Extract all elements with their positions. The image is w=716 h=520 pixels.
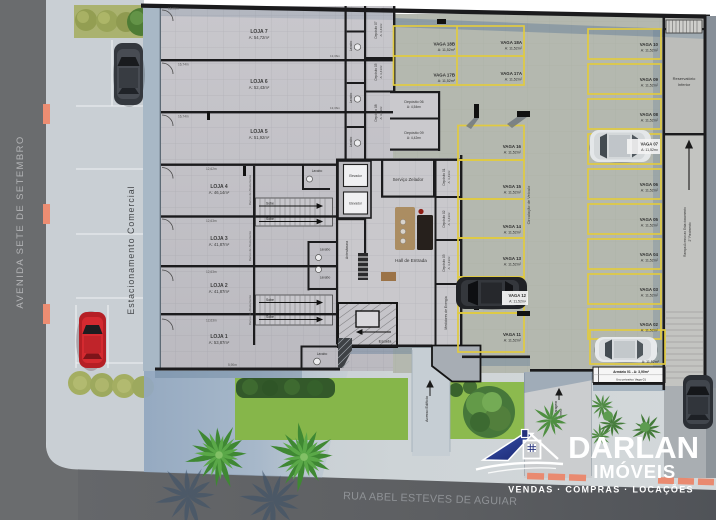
svg-text:Recuo de Afastamento: Recuo de Afastamento <box>248 174 252 205</box>
svg-text:A: 11,52m²: A: 11,52m² <box>641 148 659 152</box>
svg-text:Depósito 08: Depósito 08 <box>374 104 378 121</box>
svg-text:A: 3,43m²: A: 3,43m² <box>447 170 451 183</box>
svg-text:Uso privativo Vaga 01: Uso privativo Vaga 01 <box>616 377 646 381</box>
svg-text:DARLAN: DARLAN <box>568 430 699 465</box>
svg-text:VAGA 16: VAGA 16 <box>503 144 522 149</box>
svg-text:Depósito 02: Depósito 02 <box>442 210 446 227</box>
svg-text:12,63m: 12,63m <box>206 219 217 223</box>
svg-text:VAGA 06: VAGA 06 <box>640 182 659 187</box>
svg-text:A: 41,87m²: A: 41,87m² <box>209 289 230 294</box>
svg-text:AVENIDA SETE DE SETEMBRO: AVENIDA SETE DE SETEMBRO <box>15 135 26 308</box>
svg-text:VAGA 17A: VAGA 17A <box>501 71 523 76</box>
svg-text:VAGA 10: VAGA 10 <box>640 42 659 47</box>
svg-text:Depósito 06: Depósito 06 <box>404 100 423 104</box>
svg-text:Depósito 03: Depósito 03 <box>442 254 446 271</box>
svg-text:A: 11,52m²: A: 11,52m² <box>641 329 659 333</box>
svg-text:A: 11,52m²: A: 11,52m² <box>504 191 522 195</box>
svg-text:Circulação de Veículo: Circulação de Veículo <box>526 185 531 224</box>
svg-text:VAGA 09: VAGA 09 <box>640 77 659 82</box>
svg-text:Lavabo: Lavabo <box>312 169 323 173</box>
svg-text:A: 54,72m²: A: 54,72m² <box>249 35 270 40</box>
svg-text:Reservatório: Reservatório <box>673 76 696 81</box>
svg-text:VAGA 04: VAGA 04 <box>640 252 659 257</box>
svg-text:VAGA 03: VAGA 03 <box>640 287 659 292</box>
svg-text:A: 53,87m²: A: 53,87m² <box>209 340 230 345</box>
svg-text:Rampa Acesso ao Estacionamento: Rampa Acesso ao Estacionamento <box>683 207 687 257</box>
svg-text:VAGA 12: VAGA 12 <box>509 293 527 298</box>
svg-text:13,36m: 13,36m <box>330 54 341 58</box>
svg-text:2° Pavimento: 2° Pavimento <box>688 222 692 241</box>
svg-text:VAGA 18B: VAGA 18B <box>434 42 455 47</box>
svg-text:Depósito 07: Depósito 07 <box>374 21 378 38</box>
svg-text:IMÓVEIS: IMÓVEIS <box>593 461 676 482</box>
svg-text:12,63m: 12,63m <box>206 270 217 274</box>
svg-text:A: 46,14m²: A: 46,14m² <box>209 190 230 195</box>
svg-text:Serviço Zelador: Serviço Zelador <box>393 177 424 182</box>
svg-text:Depósito 01: Depósito 01 <box>442 168 446 185</box>
svg-text:Lavabo: Lavabo <box>320 248 331 252</box>
svg-text:5,90m: 5,90m <box>228 363 237 367</box>
svg-text:Acesso Edifício: Acesso Edifício <box>425 396 429 422</box>
svg-text:VAGA 11: VAGA 11 <box>503 332 522 337</box>
svg-text:A: 11,52m²: A: 11,52m² <box>641 49 659 53</box>
svg-text:Depósito 05: Depósito 05 <box>374 63 378 80</box>
svg-text:A: 51,92m²: A: 51,92m² <box>249 135 270 140</box>
svg-text:VAGA 17B: VAGA 17B <box>434 73 455 78</box>
svg-text:A: 11,52m²: A: 11,52m² <box>504 339 522 343</box>
svg-text:Recuo de Afastamento: Recuo de Afastamento <box>248 294 252 325</box>
svg-text:A: 4,42m²: A: 4,42m² <box>407 136 422 140</box>
svg-text:Sobe: Sobe <box>266 315 274 319</box>
svg-text:VAGA 08: VAGA 08 <box>640 112 659 117</box>
svg-text:Lavabo: Lavabo <box>349 41 353 52</box>
svg-text:A: 41,87m²: A: 41,87m² <box>209 242 230 247</box>
svg-text:A: 11,52m²: A: 11,52m² <box>438 48 456 52</box>
svg-text:13,36m: 13,36m <box>330 106 341 110</box>
svg-text:Hall de Entrada: Hall de Entrada <box>395 258 427 263</box>
svg-text:Depósito 09: Depósito 09 <box>404 131 423 135</box>
svg-text:Lavabo: Lavabo <box>349 137 353 148</box>
svg-text:Lavabo: Lavabo <box>349 93 353 104</box>
svg-text:A: 11,52m²: A: 11,52m² <box>505 78 523 82</box>
svg-text:A: 4,54m²: A: 4,54m² <box>407 105 422 109</box>
svg-text:VENDAS · COMPRAS · LOCAÇÕES: VENDAS · COMPRAS · LOCAÇÕES <box>508 485 694 495</box>
svg-text:Lavabo: Lavabo <box>317 352 328 356</box>
svg-text:VAGA 07: VAGA 07 <box>641 142 659 147</box>
svg-text:A: 11,52m²: A: 11,52m² <box>641 224 659 228</box>
svg-text:Elevador: Elevador <box>349 174 363 178</box>
svg-text:VAGA 13: VAGA 13 <box>503 256 522 261</box>
svg-text:Armário 01 - A: 3,90m²: Armário 01 - A: 3,90m² <box>613 370 650 374</box>
svg-text:A: 3,43m²: A: 3,43m² <box>447 212 451 225</box>
svg-text:Sobe: Sobe <box>266 202 274 206</box>
svg-text:A: 11,52m²: A: 11,52m² <box>642 360 660 364</box>
svg-text:A: 11,52m²: A: 11,52m² <box>641 189 659 193</box>
svg-text:VAGA 14: VAGA 14 <box>503 224 522 229</box>
svg-text:A: 11,52m²: A: 11,52m² <box>504 231 522 235</box>
svg-text:12,63m: 12,63m <box>206 319 217 323</box>
svg-text:A: 3,43m²: A: 3,43m² <box>379 23 383 36</box>
svg-text:A: 3,43m²: A: 3,43m² <box>447 256 451 269</box>
svg-text:A: 11,52m²: A: 11,52m² <box>505 47 523 51</box>
svg-text:A: 3,41m²: A: 3,41m² <box>379 65 383 78</box>
svg-text:Sobe: Sobe <box>266 298 274 302</box>
svg-text:A: 3,93m²: A: 3,93m² <box>379 106 383 119</box>
svg-text:A: 52,43m²: A: 52,43m² <box>249 85 270 90</box>
svg-text:16,74m: 16,74m <box>178 63 189 67</box>
svg-text:Antecâmara: Antecâmara <box>345 241 349 259</box>
svg-text:12,62m: 12,62m <box>206 167 217 171</box>
svg-text:VAGA 18A: VAGA 18A <box>501 40 523 45</box>
svg-text:A: 11,52m²: A: 11,52m² <box>504 263 522 267</box>
svg-text:A: 11,52m²: A: 11,52m² <box>641 294 659 298</box>
svg-text:A: 11,52m²: A: 11,52m² <box>504 151 522 155</box>
svg-text:Escada: Escada <box>379 340 393 344</box>
svg-text:Sobe: Sobe <box>266 217 274 221</box>
svg-text:Inferior: Inferior <box>678 82 691 87</box>
svg-text:Medidores de Energia: Medidores de Energia <box>444 296 448 329</box>
svg-text:A: 11,52m²: A: 11,52m² <box>641 259 659 263</box>
svg-text:A: 11,52m²: A: 11,52m² <box>641 119 659 123</box>
svg-text:Lavabo: Lavabo <box>320 276 331 280</box>
svg-text:Estacionamento Comercial: Estacionamento Comercial <box>126 185 136 314</box>
svg-text:VAGA 15: VAGA 15 <box>503 184 522 189</box>
svg-text:VAGA 05: VAGA 05 <box>640 217 659 222</box>
svg-text:Recuo de Afastamento: Recuo de Afastamento <box>248 230 252 261</box>
svg-text:Elevador: Elevador <box>349 202 363 206</box>
svg-text:VAGA 02: VAGA 02 <box>640 322 659 327</box>
svg-text:A: 11,52m²: A: 11,52m² <box>641 84 659 88</box>
svg-text:A: 11,52m²: A: 11,52m² <box>438 79 456 83</box>
svg-text:16,95m: 16,95m <box>168 7 179 11</box>
svg-text:A: 11,52m²: A: 11,52m² <box>509 300 527 304</box>
svg-text:16,74m: 16,74m <box>178 115 189 119</box>
